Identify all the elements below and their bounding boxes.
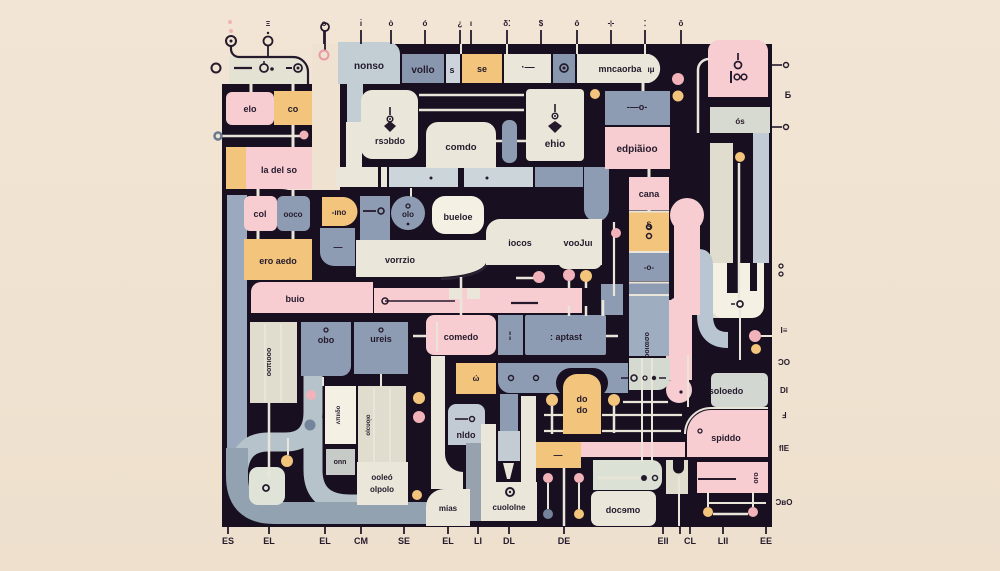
svg-text:EII: EII [657, 536, 668, 546]
svg-text:edpiãioo: edpiãioo [616, 144, 657, 155]
svg-text:ós: ós [735, 117, 745, 126]
svg-text:ES: ES [222, 536, 234, 546]
svg-text:οοπιοοο: οοπιοοο [266, 348, 273, 377]
svg-text:vorrzio: vorrzio [385, 255, 416, 265]
svg-text:vooJuı: vooJuı [563, 238, 592, 248]
svg-text:Ƃ: Ƃ [785, 90, 792, 100]
svg-text:co: co [288, 104, 299, 114]
svg-text:ʌπııδο: ʌπııδο [336, 405, 342, 424]
svg-text:soloedo: soloedo [709, 386, 744, 396]
svg-text:Ⅎ: Ⅎ [782, 411, 787, 420]
svg-text:olcυο̨ιο: olcυο̨ιο [366, 414, 372, 435]
svg-text:DL: DL [503, 536, 515, 546]
svg-text:ﬂE: ﬂE [779, 444, 790, 453]
svg-text:rsɔbdo: rsɔbdo [375, 136, 406, 146]
svg-text:ureis: ureis [370, 334, 392, 344]
svg-text:do: do [577, 405, 588, 415]
svg-text:comdo: comdo [445, 142, 476, 153]
svg-text:¦: ¦ [509, 330, 512, 340]
svg-text:oro: oro [753, 472, 760, 483]
svg-text:ooco: ooco [283, 210, 302, 219]
svg-text:ô: ô [575, 19, 580, 28]
svg-text:bueloe: bueloe [443, 212, 472, 222]
svg-text:CL: CL [684, 536, 696, 546]
svg-text:ıμ: ıμ [647, 65, 654, 74]
svg-text:col: col [253, 209, 266, 219]
svg-text:buio: buio [286, 294, 305, 304]
svg-text:olpolo: olpolo [370, 485, 394, 494]
svg-text:nldo: nldo [457, 430, 476, 440]
svg-text:LII: LII [718, 536, 729, 546]
svg-text:·—: ·— [521, 62, 534, 73]
svg-text:-ıno: -ıno [332, 208, 347, 217]
svg-text:δ⁚: δ⁚ [503, 19, 510, 28]
svg-text:EL: EL [263, 536, 275, 546]
svg-text:ƆO: ƆO [778, 358, 790, 367]
svg-text:cana: cana [639, 189, 661, 199]
svg-text:mncaorba: mncaorba [598, 64, 642, 74]
svg-text:EE: EE [760, 536, 772, 546]
svg-text:mias: mias [439, 504, 458, 513]
svg-text:ó: ó [423, 19, 428, 28]
svg-text:οοιαισο: οοιαισο [644, 332, 651, 358]
svg-text:la del so: la del so [261, 165, 298, 175]
svg-text:DE: DE [558, 536, 571, 546]
svg-text:$: $ [539, 19, 544, 28]
svg-text:docɘmo: docɘmo [606, 505, 641, 515]
svg-text:elo: elo [243, 104, 257, 114]
svg-text:vollo: vollo [411, 65, 434, 76]
svg-text:Ξ: Ξ [266, 21, 271, 28]
svg-text:s: s [449, 65, 454, 75]
svg-text:EL: EL [442, 536, 454, 546]
svg-text:I≡: I≡ [781, 326, 788, 335]
svg-text:do: do [577, 394, 588, 404]
svg-text:DI: DI [780, 386, 788, 395]
svg-text:-o-: -o- [644, 263, 655, 272]
svg-text:SE: SE [398, 536, 410, 546]
svg-text:iocos: iocos [508, 238, 532, 248]
svg-text:¿: ¿ [458, 19, 463, 28]
svg-text:ı̇: ı̇ [360, 19, 362, 28]
svg-text:onn: onn [334, 459, 347, 466]
svg-text:-—o-: -—o- [627, 102, 648, 112]
svg-text:olo: olo [402, 210, 414, 219]
svg-text:spiddo: spiddo [711, 433, 741, 443]
svg-text:—: — [334, 242, 343, 252]
svg-text:ō: ō [679, 19, 684, 28]
svg-text:obo: obo [318, 335, 335, 345]
svg-text:CM: CM [354, 536, 368, 546]
svg-text:ooleó: ooleó [371, 473, 392, 482]
svg-text:ώ: ώ [473, 374, 480, 383]
svg-text:ı: ı [470, 19, 472, 28]
svg-text:ero aedo: ero aedo [259, 256, 297, 266]
svg-text:ȯ: ȯ [389, 19, 394, 28]
svg-text:—: — [554, 450, 563, 460]
svg-text:LI: LI [474, 536, 482, 546]
svg-text:ehio: ehio [545, 139, 566, 150]
svg-text:⁚: ⁚ [644, 19, 647, 28]
svg-text:cuololne: cuololne [493, 503, 526, 512]
svg-text:nonso: nonso [354, 61, 384, 72]
svg-text:comedo: comedo [444, 332, 479, 342]
svg-text:⊹: ⊹ [608, 19, 615, 28]
svg-text:se: se [477, 64, 487, 74]
svg-text:: aptast: : aptast [550, 332, 582, 342]
svg-text:ƆʙO: ƆʙO [776, 498, 793, 507]
svg-text:EL: EL [319, 536, 331, 546]
